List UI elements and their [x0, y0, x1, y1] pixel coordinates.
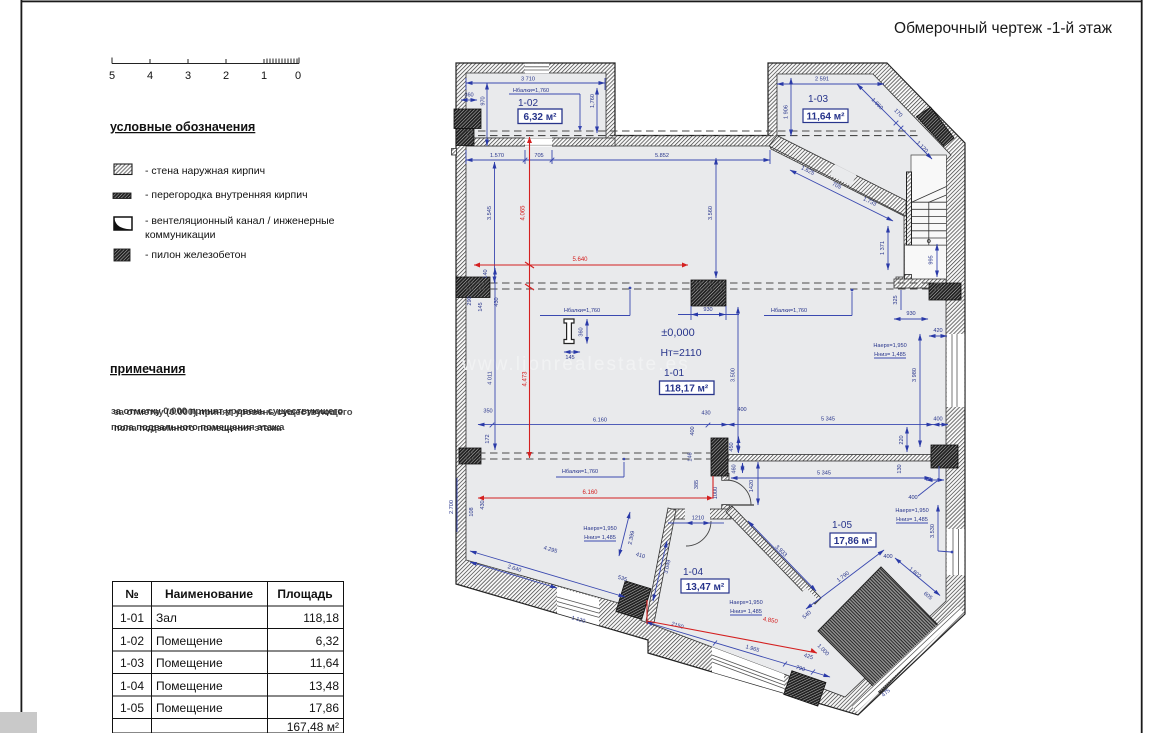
svg-text:коммуникации: коммуникации [145, 229, 216, 241]
svg-text:4 011: 4 011 [488, 371, 494, 385]
svg-text:400: 400 [690, 426, 696, 435]
svg-text:3 980: 3 980 [912, 368, 918, 382]
svg-text:пола подземного помещения этаж: пола подземного помещения этажа [114, 423, 282, 434]
svg-text:5 345: 5 345 [817, 471, 831, 477]
svg-text:Зал: Зал [156, 611, 177, 625]
svg-text:3.530: 3.530 [930, 524, 936, 538]
svg-text:4.473: 4.473 [523, 371, 529, 387]
svg-text:118,17 м²: 118,17 м² [665, 384, 709, 395]
svg-text:3.500: 3.500 [731, 368, 737, 382]
svg-text:условные обозначения: условные обозначения [110, 120, 255, 134]
svg-text:6.160: 6.160 [582, 490, 598, 496]
svg-text:1-04: 1-04 [683, 567, 703, 578]
svg-text:1: 1 [261, 70, 267, 82]
svg-text:Нниз= 1,485: Нниз= 1,485 [874, 352, 906, 358]
svg-text:17,86 м²: 17,86 м² [834, 536, 873, 547]
svg-text:995: 995 [929, 255, 935, 264]
svg-text:5.852: 5.852 [655, 153, 669, 159]
svg-text:167,48 м²: 167,48 м² [287, 720, 339, 733]
svg-text:450: 450 [729, 442, 735, 451]
svg-text:1-01: 1-01 [664, 368, 684, 379]
svg-text:- перегородка внутренняя кирпи: - перегородка внутренняя кирпич [145, 189, 308, 201]
svg-text:430: 430 [701, 411, 710, 417]
svg-text:970: 970 [481, 96, 487, 105]
svg-text:1-05: 1-05 [120, 701, 144, 715]
svg-text:1,760: 1,760 [590, 94, 596, 108]
svg-text:350: 350 [483, 409, 492, 415]
svg-text:6,32 м²: 6,32 м² [524, 112, 558, 123]
svg-text:1-05: 1-05 [832, 520, 852, 531]
svg-text:Нбалки=1,760: Нбалки=1,760 [513, 88, 549, 94]
svg-text:Нниз= 1,485: Нниз= 1,485 [584, 535, 616, 541]
svg-text:Hт=2110: Hт=2110 [660, 347, 701, 359]
svg-text:4: 4 [147, 70, 153, 82]
svg-text:1420: 1420 [749, 480, 755, 492]
svg-text:Нниз= 1,485: Нниз= 1,485 [730, 609, 762, 615]
svg-text:Помещение: Помещение [156, 679, 223, 693]
svg-text:13,47 м²: 13,47 м² [686, 582, 725, 593]
svg-text:0: 0 [295, 70, 301, 82]
svg-text:Наерх=1,950: Наерх=1,950 [895, 508, 928, 514]
svg-text:400: 400 [933, 417, 942, 423]
svg-text:420: 420 [933, 328, 942, 334]
svg-text:930: 930 [703, 307, 712, 313]
svg-text:13,48: 13,48 [309, 679, 339, 693]
svg-text:5.640: 5.640 [572, 257, 588, 263]
svg-text:400: 400 [883, 554, 892, 560]
svg-text:1-03: 1-03 [120, 656, 144, 670]
svg-text:Наерх=1,950: Наерх=1,950 [583, 526, 616, 532]
svg-text:130: 130 [897, 464, 903, 473]
svg-text:145: 145 [478, 302, 484, 311]
svg-text:1000: 1000 [713, 487, 719, 499]
svg-text:1210: 1210 [692, 516, 704, 522]
svg-text:1.570: 1.570 [490, 153, 504, 159]
svg-text:11,64 м²: 11,64 м² [807, 112, 846, 123]
svg-text:за отметку (0.000) принят уров: за отметку (0.000) принят уровень сущест… [114, 407, 353, 418]
svg-text:360: 360 [579, 327, 585, 336]
svg-text:172: 172 [485, 434, 491, 443]
svg-text:460: 460 [732, 464, 738, 473]
svg-text:Нбалки=1,760: Нбалки=1,760 [562, 469, 598, 475]
svg-text:360: 360 [464, 93, 473, 99]
svg-text:Наименование: Наименование [165, 587, 253, 601]
svg-text:№: № [125, 587, 138, 601]
svg-text:3.560: 3.560 [708, 206, 714, 220]
svg-text:1-02: 1-02 [120, 634, 144, 648]
svg-text:Наерх=1,950: Наерх=1,950 [729, 600, 762, 606]
svg-text:146: 146 [688, 452, 694, 461]
svg-text:6.160: 6.160 [593, 418, 607, 424]
svg-text:Площадь: Площадь [277, 587, 332, 601]
svg-text:3.545: 3.545 [487, 206, 493, 220]
svg-text:Помещение: Помещение [156, 634, 223, 648]
svg-text:325: 325 [893, 295, 899, 304]
svg-text:2: 2 [223, 70, 229, 82]
svg-text:Нбалки=1,760: Нбалки=1,760 [771, 308, 807, 314]
svg-text:2 591: 2 591 [815, 77, 829, 83]
svg-text:11,64: 11,64 [310, 656, 339, 670]
svg-text:Наерх=1,950: Наерх=1,950 [873, 343, 906, 349]
svg-text:400: 400 [908, 495, 917, 501]
svg-text:705: 705 [534, 153, 543, 159]
svg-text:2.700: 2.700 [449, 500, 455, 514]
svg-text:5 345: 5 345 [821, 417, 835, 423]
svg-text:145: 145 [565, 355, 574, 361]
svg-text:Обмерочный чертеж -1-й этаж: Обмерочный чертеж -1-й этаж [894, 20, 1113, 37]
svg-text:220: 220 [899, 435, 905, 444]
svg-text:400: 400 [737, 407, 746, 413]
svg-text:1-04: 1-04 [120, 679, 144, 693]
svg-text:- стена наружная кирпич: - стена наружная кирпич [145, 165, 265, 177]
svg-text:385: 385 [694, 480, 700, 489]
svg-text:6,32: 6,32 [316, 634, 340, 648]
svg-text:108: 108 [469, 507, 475, 516]
svg-text:3: 3 [185, 70, 191, 82]
svg-text:- вентеляционный канал / инжен: - вентеляционный канал / инженерные [145, 215, 335, 227]
svg-text:1-01: 1-01 [120, 611, 144, 625]
svg-text:Помещение: Помещение [156, 656, 223, 670]
svg-text:290: 290 [467, 296, 473, 305]
svg-text:1 906: 1 906 [784, 105, 790, 119]
svg-text:140: 140 [483, 269, 489, 278]
svg-text:Нниз= 1,485: Нниз= 1,485 [896, 517, 928, 523]
svg-text:примечания: примечания [110, 362, 186, 376]
svg-text:- пилон железобетон: - пилон железобетон [145, 249, 246, 261]
svg-text:3 710: 3 710 [521, 77, 535, 83]
svg-text:5: 5 [109, 70, 115, 82]
svg-text:4.065: 4.065 [521, 205, 527, 221]
svg-text:930: 930 [906, 311, 915, 317]
svg-text:1 371: 1 371 [880, 241, 886, 255]
svg-text:430: 430 [480, 500, 486, 509]
svg-text:1-03: 1-03 [808, 94, 828, 105]
svg-text:17,86: 17,86 [309, 701, 339, 715]
svg-text:±0,000: ±0,000 [661, 327, 695, 339]
svg-text:118,18: 118,18 [303, 611, 339, 625]
svg-text:Помещение: Помещение [156, 701, 223, 715]
svg-text:Нбалки=1,760: Нбалки=1,760 [564, 308, 600, 314]
svg-text:1-02: 1-02 [518, 98, 538, 109]
